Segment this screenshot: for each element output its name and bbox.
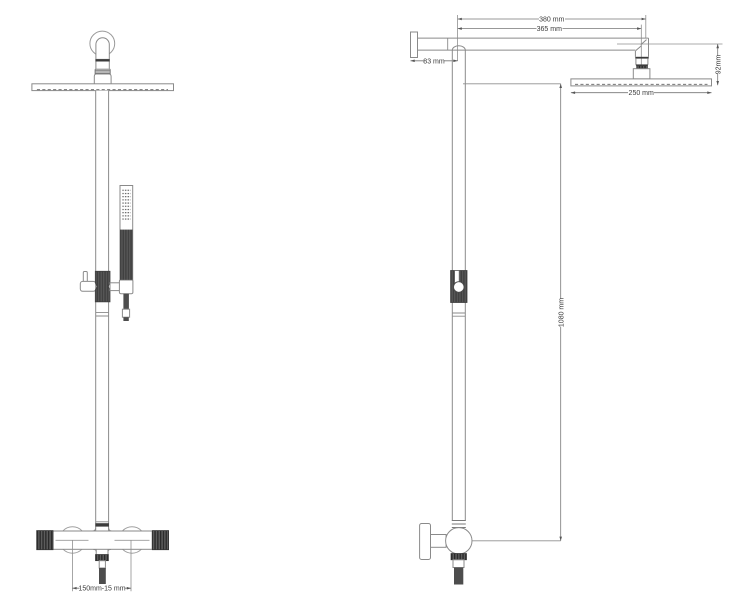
svg-text:380 mm: 380 mm: [539, 17, 564, 24]
svg-text:150mm-15 mm: 150mm-15 mm: [78, 586, 125, 593]
svg-text:83 mm: 83 mm: [423, 58, 445, 65]
svg-text:250 mm: 250 mm: [629, 90, 654, 97]
svg-text:1080 mm: 1080 mm: [558, 298, 565, 327]
svg-text:92mm: 92mm: [715, 55, 722, 75]
svg-text:365 mm: 365 mm: [537, 26, 562, 33]
